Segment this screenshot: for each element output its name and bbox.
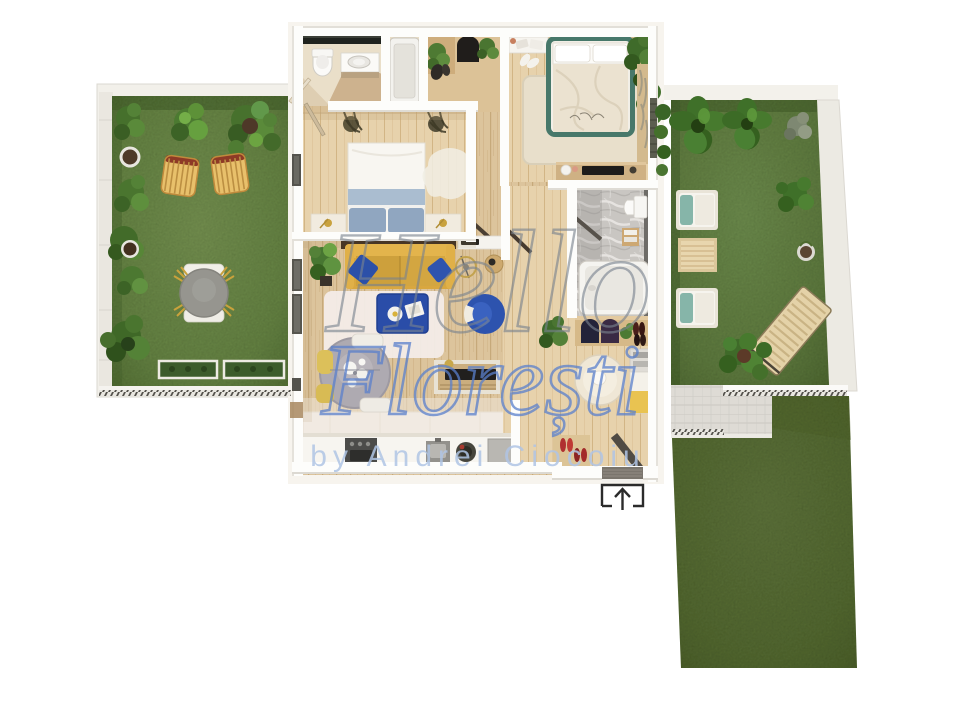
svg-text:by Andrei Ciocoiu: by Andrei Ciocoiu bbox=[310, 440, 645, 473]
svg-text:Florești: Florești bbox=[320, 324, 640, 437]
